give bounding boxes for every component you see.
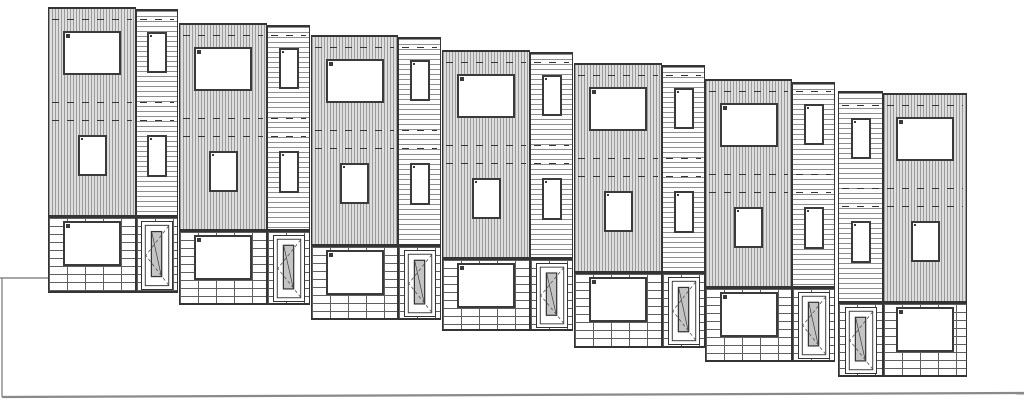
- entry-door: [798, 292, 830, 359]
- floor-line-dashed: [402, 130, 437, 131]
- lower-pane: [545, 78, 547, 80]
- roofline-dashed: [796, 91, 831, 92]
- second-floor-window: [734, 207, 763, 248]
- side-sash: [329, 253, 333, 257]
- lower-pane: [282, 154, 284, 156]
- floor-line-dashed: [842, 188, 879, 189]
- brick-base-entry: [792, 287, 835, 362]
- brick-base-main: [574, 272, 662, 348]
- lower-pane: [807, 107, 809, 109]
- third-floor-slot-window: [542, 75, 562, 116]
- lower-pane: [475, 181, 477, 183]
- first-floor-triple-window: [896, 307, 954, 352]
- side-sash: [460, 77, 464, 81]
- side-sash: [66, 34, 70, 38]
- roofline-dashed: [140, 19, 174, 20]
- entry-door: [404, 250, 436, 317]
- entry-bay-siding: [267, 25, 310, 230]
- floor-line-dashed: [666, 158, 701, 159]
- entry-bay-siding: [838, 91, 883, 302]
- roofline-dashed: [709, 91, 788, 92]
- floor-line-dashed: [183, 118, 263, 119]
- entry-bay-siding: [136, 9, 178, 216]
- roofline-dashed: [52, 19, 132, 20]
- brick-base-entry: [136, 216, 178, 293]
- entry-bay-siding: [530, 52, 573, 258]
- entry-door: [845, 307, 877, 374]
- brick-base-main: [705, 287, 792, 362]
- second-floor-window: [209, 151, 238, 192]
- floor-line-dashed: [140, 120, 174, 121]
- third-floor-slot-window: [279, 48, 299, 89]
- townhouse-unit-5: [574, 63, 705, 348]
- brick-base-main: [442, 258, 530, 331]
- lower-pane: [737, 210, 739, 212]
- floor-line-dashed: [52, 102, 132, 103]
- second-floor-window: [340, 163, 369, 204]
- lower-pane: [854, 121, 856, 123]
- second-floor-window: [78, 135, 107, 176]
- brick-base-entry: [398, 245, 441, 320]
- floor-line-dashed: [183, 136, 263, 137]
- roofline-dashed: [842, 105, 879, 106]
- side-sash: [329, 62, 333, 66]
- floor-line-dashed: [842, 206, 879, 207]
- lower-pane: [854, 224, 856, 226]
- entry-bay-siding: [662, 65, 705, 272]
- townhouse-unit-4: [442, 50, 573, 331]
- side-sash: [899, 310, 903, 314]
- floor-line-dashed: [402, 148, 437, 149]
- brick-base-main: [883, 302, 967, 377]
- entry-bay-siding: [792, 82, 835, 287]
- first-floor-triple-window: [457, 263, 515, 308]
- elevation-drawing-canvas: [0, 0, 1024, 404]
- main-bay-siding: [442, 50, 530, 258]
- third-floor-triple-window: [457, 74, 515, 118]
- floor-line-dashed: [52, 120, 132, 121]
- third-floor-slot-window: [674, 88, 694, 129]
- first-floor-triple-window: [720, 292, 778, 337]
- lower-pane: [282, 51, 284, 53]
- floor-line-dashed: [140, 102, 174, 103]
- lower-pane: [81, 138, 83, 140]
- second-floor-slot-window: [851, 221, 871, 263]
- roofline-dashed: [666, 75, 701, 76]
- floor-line-dashed: [709, 174, 788, 175]
- lower-pane: [807, 210, 809, 212]
- main-bay-siding: [883, 93, 967, 302]
- entry-door: [141, 221, 173, 290]
- roofline-dashed: [578, 75, 658, 76]
- side-sash: [66, 224, 70, 228]
- lower-pane: [413, 63, 415, 65]
- second-floor-slot-window: [804, 207, 824, 249]
- roofline-dashed: [402, 47, 437, 48]
- main-bay-siding: [179, 23, 267, 230]
- lower-pane: [150, 35, 152, 37]
- townhouse-unit-6: [705, 79, 835, 362]
- third-floor-triple-window: [194, 47, 252, 91]
- townhouse-unit-7: [838, 91, 967, 377]
- townhouse-unit-2: [179, 23, 310, 305]
- second-floor-slot-window: [410, 163, 430, 205]
- lower-pane: [677, 91, 679, 93]
- side-sash: [460, 266, 464, 270]
- floor-line-dashed: [887, 188, 963, 189]
- lower-pane: [150, 138, 152, 140]
- main-bay-siding: [705, 79, 792, 287]
- floor-line-dashed: [271, 136, 306, 137]
- floor-line-dashed: [534, 145, 569, 146]
- side-sash: [592, 280, 596, 284]
- lower-pane: [914, 224, 916, 226]
- third-floor-slot-window: [804, 104, 824, 145]
- floor-line-dashed: [796, 192, 831, 193]
- third-floor-triple-window: [326, 59, 384, 103]
- floor-line-dashed: [315, 130, 394, 131]
- roofline-dashed: [446, 62, 526, 63]
- roofline-dashed: [271, 35, 306, 36]
- ground-base-line: [2, 393, 1024, 397]
- third-floor-triple-window: [589, 87, 647, 131]
- entry-door: [668, 277, 700, 345]
- side-sash: [592, 90, 596, 94]
- side-sash: [899, 120, 903, 124]
- side-sash: [197, 238, 201, 242]
- roofline-dashed: [183, 35, 263, 36]
- first-floor-triple-window: [194, 235, 252, 280]
- side-sash: [197, 50, 201, 54]
- lower-pane: [607, 194, 609, 196]
- brick-base-entry: [530, 258, 573, 331]
- second-floor-slot-window: [147, 135, 167, 177]
- main-bay-siding: [48, 7, 136, 216]
- roofline-dashed: [534, 62, 569, 63]
- first-floor-triple-window: [326, 250, 384, 295]
- third-floor-triple-window: [896, 117, 954, 161]
- second-floor-window: [604, 191, 633, 232]
- third-floor-triple-window: [63, 31, 121, 75]
- floor-line-dashed: [534, 163, 569, 164]
- townhouse-unit-1: [48, 7, 178, 293]
- third-floor-slot-window: [147, 32, 167, 73]
- floor-line-dashed: [446, 163, 526, 164]
- townhouse-unit-3: [311, 35, 441, 320]
- floor-line-dashed: [709, 192, 788, 193]
- entry-door: [536, 263, 568, 328]
- lower-pane: [343, 166, 345, 168]
- side-sash: [723, 295, 727, 299]
- floor-line-dashed: [666, 176, 701, 177]
- brick-base-entry: [662, 272, 705, 348]
- floor-line-dashed: [315, 148, 394, 149]
- brick-base-main: [311, 245, 398, 320]
- floor-line-dashed: [446, 145, 526, 146]
- entry-bay-siding: [398, 37, 441, 245]
- floor-line-dashed: [271, 118, 306, 119]
- second-floor-slot-window: [674, 191, 694, 233]
- lower-pane: [677, 194, 679, 196]
- lower-pane: [212, 154, 214, 156]
- entry-door: [273, 235, 305, 302]
- side-sash: [723, 106, 727, 110]
- brick-base-main: [179, 230, 267, 305]
- first-floor-triple-window: [63, 221, 121, 266]
- lower-pane: [413, 166, 415, 168]
- floor-line-dashed: [796, 174, 831, 175]
- brick-base-entry: [838, 302, 883, 377]
- main-bay-siding: [574, 63, 662, 272]
- brick-base-main: [48, 216, 136, 293]
- floor-line-dashed: [578, 158, 658, 159]
- brick-base-entry: [267, 230, 310, 305]
- roofline-dashed: [315, 47, 394, 48]
- second-floor-window: [911, 221, 940, 262]
- second-floor-window: [472, 178, 501, 219]
- lower-pane: [545, 181, 547, 183]
- floor-line-dashed: [887, 206, 963, 207]
- third-floor-slot-window: [851, 118, 871, 159]
- third-floor-triple-window: [720, 103, 778, 147]
- main-bay-siding: [311, 35, 398, 245]
- third-floor-slot-window: [410, 60, 430, 101]
- second-floor-slot-window: [279, 151, 299, 193]
- floor-line-dashed: [578, 176, 658, 177]
- roofline-dashed: [887, 105, 963, 106]
- second-floor-slot-window: [542, 178, 562, 220]
- first-floor-triple-window: [589, 277, 647, 322]
